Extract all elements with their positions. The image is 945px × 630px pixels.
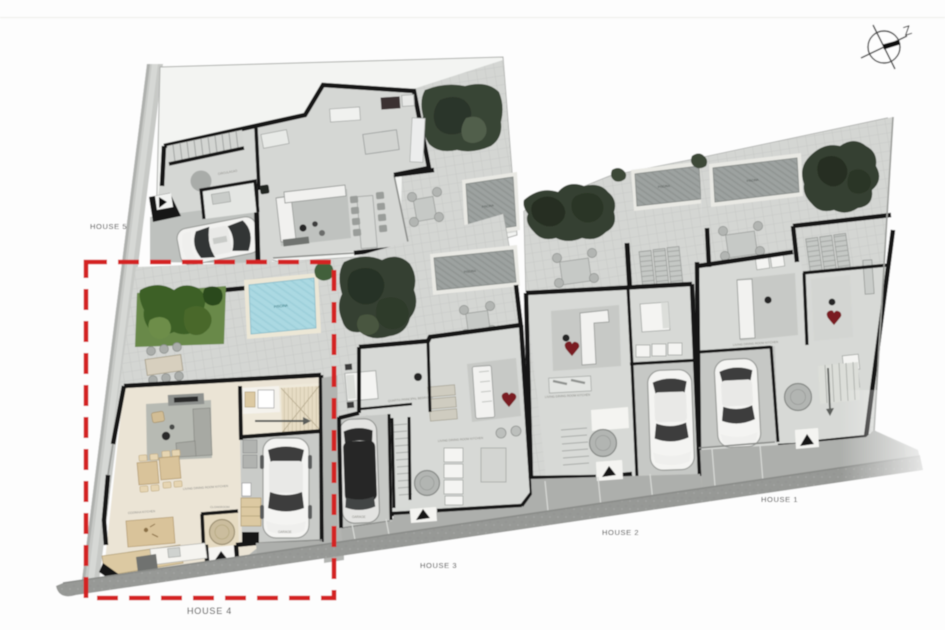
svg-text:HOUSE 1: HOUSE 1 — [761, 495, 798, 504]
svg-text:CLOAKROOM: CLOAKROOM — [210, 505, 230, 509]
svg-text:HOUSE 4: HOUSE 4 — [187, 606, 232, 616]
svg-text:GARAGE: GARAGE — [278, 530, 292, 534]
svg-text:GARAGE: GARAGE — [352, 515, 366, 519]
svg-text:HOUSE 2: HOUSE 2 — [602, 528, 639, 537]
svg-text:HOUSE 3: HOUSE 3 — [420, 561, 457, 570]
svg-text:HOUSE 5: HOUSE 5 — [90, 222, 127, 231]
